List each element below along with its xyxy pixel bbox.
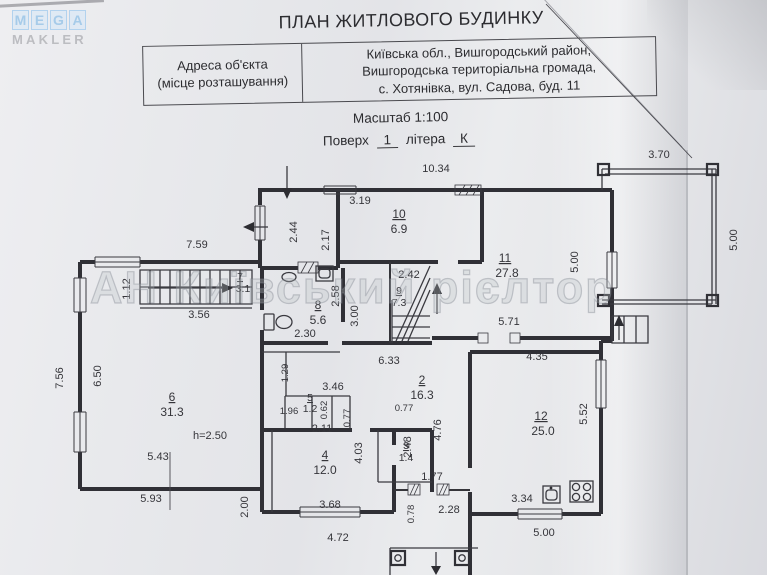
dimension-label: 1.96 — [280, 406, 299, 417]
kitchen-sink-icon — [543, 486, 560, 503]
room-number: 10 — [392, 207, 406, 221]
dimension-label: 1.29 — [280, 364, 291, 383]
room-number: 12 — [534, 409, 548, 423]
room-label: 4 12.0 — [313, 448, 337, 477]
dimension-label: 4.35 — [526, 351, 547, 363]
dimension-label: 5.43 — [147, 451, 168, 463]
dimension-label: 2.28 — [438, 504, 459, 516]
entry-arrow — [243, 222, 254, 232]
porch — [390, 548, 478, 575]
entry-arrow — [282, 188, 292, 199]
dimension-label: 5.00 — [533, 527, 554, 539]
room-label: 2 16.3 — [410, 373, 434, 402]
terrace — [598, 164, 718, 306]
dimension-label: 4.03 — [353, 442, 365, 463]
dimension-label: 10.34 — [422, 163, 450, 175]
address-line: с. Хотянівка, вул. Садова, буд. 11 — [379, 76, 581, 97]
dimension-label: 5.52 — [578, 403, 590, 424]
dimension-label: 2.44 — [288, 221, 300, 242]
letter-label: літера — [406, 131, 446, 147]
ceiling-height-label: h=2.50 — [193, 430, 227, 442]
logo-letter: A — [69, 10, 86, 30]
dimension-label: 0.77 — [342, 409, 353, 428]
address-value-cell: Київська обл., Вишгородський район, Вишг… — [302, 37, 656, 102]
dimension-label: 0.77 — [395, 403, 414, 414]
porch-post — [391, 551, 405, 565]
logo-letter: G — [50, 10, 67, 30]
dimension-label: 3.70 — [648, 149, 669, 161]
floor-label: Поверх — [323, 133, 369, 149]
room-area: 6.9 — [391, 222, 408, 236]
letter-value: К — [453, 131, 475, 147]
dimension-label: 3.68 — [319, 499, 340, 511]
dimension-label: 6.33 — [378, 355, 399, 367]
dimension-label: 0.78 — [406, 505, 417, 524]
dimension-label: 5.93 — [140, 493, 161, 505]
dimension-label: 1.77 — [421, 471, 442, 483]
room-area: 31.3 — [160, 405, 184, 419]
room-area: 25.0 — [531, 424, 555, 438]
address-label-line: Адреса об'єкта — [177, 57, 268, 76]
logo-letter: M — [12, 10, 29, 30]
dimension-label: 6.50 — [92, 365, 104, 386]
dimension-label: 3.46 — [322, 381, 343, 393]
room-label: 6 31.3 — [160, 390, 184, 419]
dimension-label: 5.71 — [498, 316, 519, 328]
room-number: 4 — [322, 448, 329, 462]
room-number: 6 — [169, 390, 176, 404]
toilet-icon — [264, 314, 292, 330]
floor-value: 1 — [376, 132, 398, 148]
dimension-label: 2.11 — [312, 423, 333, 435]
dimension-label: 7.56 — [54, 367, 66, 388]
dimension-label: 2.30 — [294, 328, 315, 340]
stove-icon — [570, 481, 593, 502]
room-area: 12.0 — [313, 463, 337, 477]
dimension-label: 2.00 — [239, 496, 251, 517]
room-number: 2 — [419, 373, 426, 387]
entry-arrow — [431, 566, 441, 575]
dimension-label: 0.62 — [319, 401, 330, 420]
dimension-label: 3.19 — [349, 195, 370, 207]
entrance-arrows — [243, 166, 292, 232]
logo-subtitle: MAKLER — [12, 32, 87, 47]
side-steps — [612, 315, 648, 343]
logo-mega: M E G A — [12, 10, 87, 30]
dimension-label: 3.34 — [511, 493, 532, 505]
room-label: 12 25.0 — [531, 409, 555, 438]
room-area: 16.3 — [410, 388, 434, 402]
address-label-line: (місце розташування) — [157, 73, 288, 92]
address-label-cell: Адреса об'єкта (місце розташування) — [143, 44, 303, 105]
dimension-label: 2.17 — [320, 229, 332, 250]
address-table: Адреса об'єкта (місце розташування) Київ… — [142, 36, 657, 106]
porch-post — [455, 551, 469, 565]
dimension-label: 7.59 — [186, 239, 207, 251]
dimension-label: 4.72 — [327, 532, 348, 544]
logo-letter: E — [31, 10, 48, 30]
agency-watermark: АН Київський рієлтор — [90, 262, 615, 314]
dimension-label: 2.48 — [402, 436, 414, 457]
dimension-label: 5.00 — [728, 229, 740, 250]
room-area: 5.6 — [310, 313, 327, 327]
agency-logo: M E G A MAKLER — [12, 10, 87, 47]
room-area: 1.2 — [303, 403, 318, 415]
dimension-label: 4.76 — [432, 419, 444, 440]
room-label: 10 6.9 — [391, 207, 408, 236]
scanned-floor-plan-page: M E G A MAKLER ПЛАН ЖИТЛОВОГО БУДИНКУ Ад… — [0, 0, 767, 575]
